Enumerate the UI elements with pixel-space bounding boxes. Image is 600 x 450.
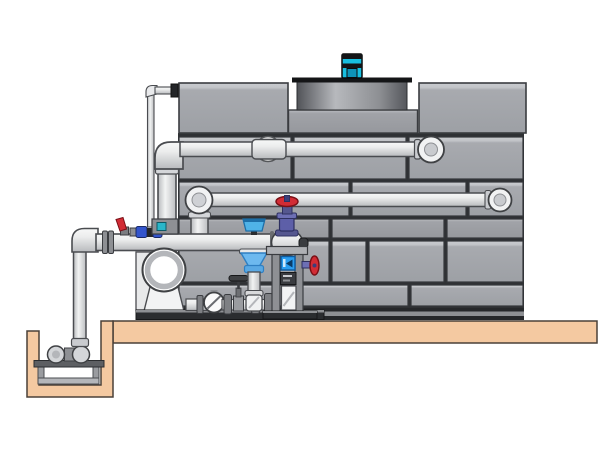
- tower-top-right-box: [419, 83, 526, 133]
- motor-mid-band: [342, 64, 362, 69]
- teal-sensor: [157, 223, 166, 231]
- cooling-tower-pump-system-illustration: [0, 0, 600, 450]
- globe-valve-red-handwheel: [276, 196, 299, 237]
- manifold-flange-a: [103, 231, 108, 254]
- concrete-slab: [113, 321, 597, 343]
- fan-assembly: [292, 54, 412, 110]
- blue-flow-display: [281, 257, 295, 271]
- hot-water-inlet-pipe: [180, 142, 416, 157]
- sump-pit: [27, 321, 113, 397]
- riser-elbow: [155, 142, 183, 169]
- end-suction-pump: [136, 249, 186, 312]
- manifold-flange-b: [109, 231, 114, 254]
- sump-riser-pipe: [72, 229, 99, 347]
- fan-recess-band: [289, 110, 418, 133]
- pipe-sleeve-coupling: [252, 140, 286, 160]
- suction-manifold-pipe: [96, 234, 278, 251]
- sump-riser-elbow: [72, 229, 98, 253]
- sump-pump-stand: [34, 361, 104, 385]
- motor-top-band: [342, 54, 362, 59]
- stand-top-plate: [267, 247, 308, 255]
- tower-outlet-pipe: [199, 193, 490, 207]
- motor-face: [347, 69, 357, 78]
- stub-flange: [197, 296, 203, 314]
- stand-post-left: [272, 254, 280, 312]
- makeup-pipe-flange: [171, 84, 178, 97]
- riser-saddle-block: [152, 219, 178, 234]
- control-module: [281, 273, 297, 285]
- red-tap-valve: [116, 218, 129, 236]
- fan-shroud: [297, 82, 407, 111]
- separator-pipe: [248, 272, 260, 292]
- sump-pump: [48, 346, 90, 363]
- illustration-stage: [0, 0, 600, 450]
- top-left-panel: [179, 83, 288, 133]
- train-flange-a: [224, 295, 232, 315]
- riser-collar: [72, 339, 89, 347]
- sump-pump-casing: [73, 346, 90, 363]
- fan-motor: [342, 54, 362, 79]
